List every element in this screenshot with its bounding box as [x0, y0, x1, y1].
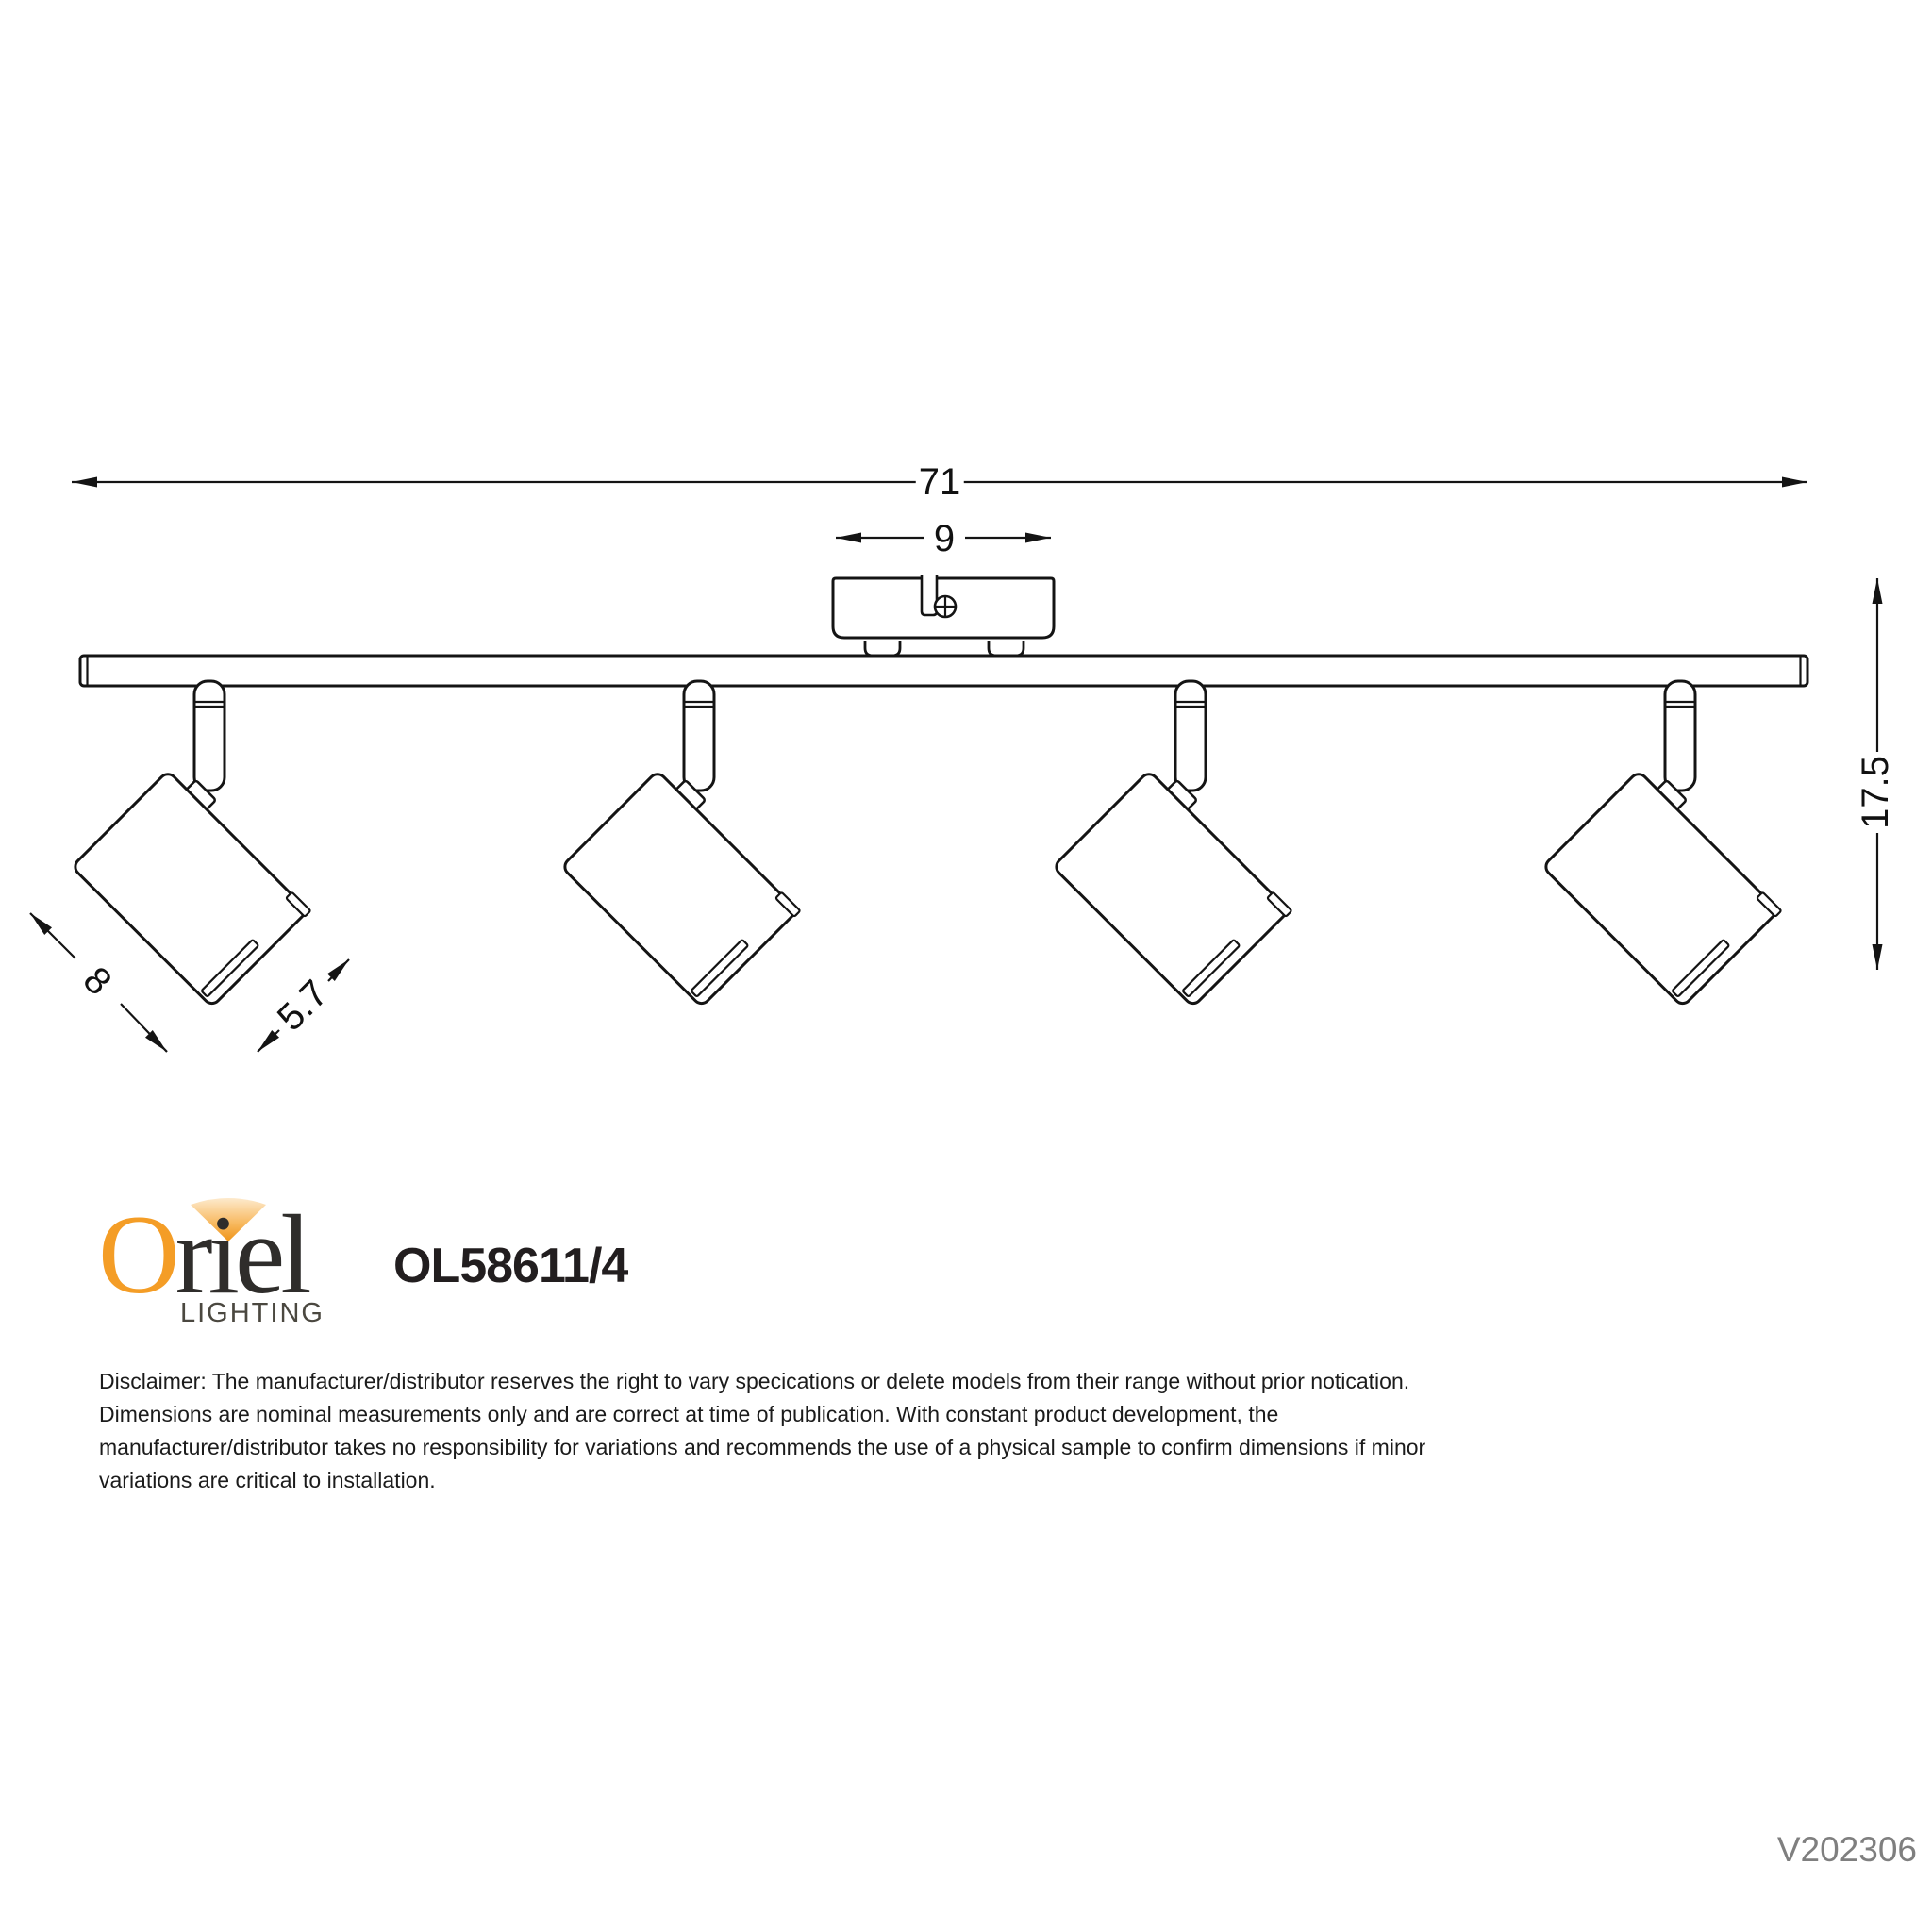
product-code: OL58611/4 — [393, 1241, 627, 1291]
version-code: V202306 — [1777, 1832, 1917, 1867]
spotlight-head — [1542, 761, 1790, 1008]
arrow-right-icon — [1782, 477, 1807, 488]
disclaimer-line: variations are critical to installation. — [99, 1464, 1425, 1497]
spotlight-head — [561, 761, 808, 1008]
swivel-stem — [684, 681, 714, 791]
disclaimer-text: Disclaimer: The manufacturer/distributor… — [99, 1365, 1425, 1497]
arrow-left-icon — [836, 533, 861, 543]
brand-initial: O — [98, 1191, 175, 1317]
disclaimer-line: Dimensions are nominal measurements only… — [99, 1398, 1425, 1431]
arrow-up-icon — [1873, 578, 1883, 604]
line-drawing — [0, 0, 1932, 1932]
spotlight-head — [1053, 761, 1300, 1008]
swivel-stem — [1665, 681, 1695, 791]
arrow-right-icon — [1025, 533, 1051, 543]
spec-sheet-page: 71 9 17.5 8 5.7 Oriel LIGHTING OL58611/4… — [0, 0, 1932, 1932]
dimension-label-height: 17.5 — [1857, 753, 1894, 832]
canopy-foot — [989, 641, 1024, 656]
disclaimer-line: manufacturer/distributor takes no respon… — [99, 1431, 1425, 1464]
screw-icon — [935, 596, 956, 617]
swivel-stem — [1175, 681, 1206, 791]
brand-tagline: LIGHTING — [180, 1300, 325, 1327]
arrow-left-icon — [72, 477, 97, 488]
arrow-down-icon — [1873, 944, 1883, 970]
dimension-arrowheads — [30, 477, 1883, 1053]
disclaimer-line: Disclaimer: The manufacturer/distributor… — [99, 1365, 1425, 1398]
canopy-foot — [865, 641, 900, 656]
dimension-label-total-length: 71 — [916, 463, 964, 501]
dimension-label-canopy-length: 9 — [931, 520, 958, 558]
mounting-bar — [80, 656, 1807, 686]
dimension-lines — [30, 482, 1877, 1052]
swivel-stem — [194, 681, 225, 791]
brand-logo: Oriel — [98, 1198, 308, 1311]
